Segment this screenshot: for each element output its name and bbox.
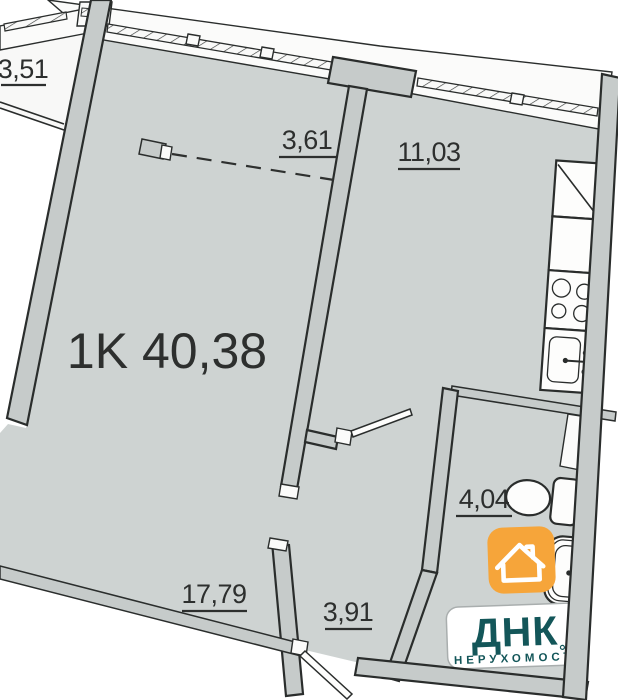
window-mullion-2 xyxy=(260,47,274,59)
plan-title: 1K 40,38 xyxy=(67,323,267,379)
hallway-wall-cap xyxy=(268,538,288,551)
window-mullion-3 xyxy=(510,93,524,105)
dnk-logo: ДНК НЕРУХОМОСТІ xyxy=(446,603,585,670)
room-label-bathroom: 4,04 xyxy=(459,484,510,514)
floor-plan-image: 3,51 3,61 11,03 1K 40,38 4,04 17,79 3,91… xyxy=(0,0,618,700)
wardrobe-stub-cap xyxy=(160,145,172,160)
door-stub-cap xyxy=(335,428,352,445)
room-label-balcony: 3,51 xyxy=(0,54,48,84)
window-mullion-1 xyxy=(186,34,200,46)
wall-living-kitchen-cap xyxy=(279,484,299,499)
floor-plan-svg: 3,51 3,61 11,03 1K 40,38 4,04 17,79 3,91… xyxy=(0,0,618,700)
room-label-kitchen: 11,03 xyxy=(397,137,460,167)
room-label-living: 17,79 xyxy=(181,579,246,609)
house-app-icon xyxy=(487,526,556,594)
room-label-hallway: 3,91 xyxy=(323,597,374,627)
room-label-wardrobe: 3,61 xyxy=(282,125,333,155)
brand-name: ДНК xyxy=(471,608,559,657)
